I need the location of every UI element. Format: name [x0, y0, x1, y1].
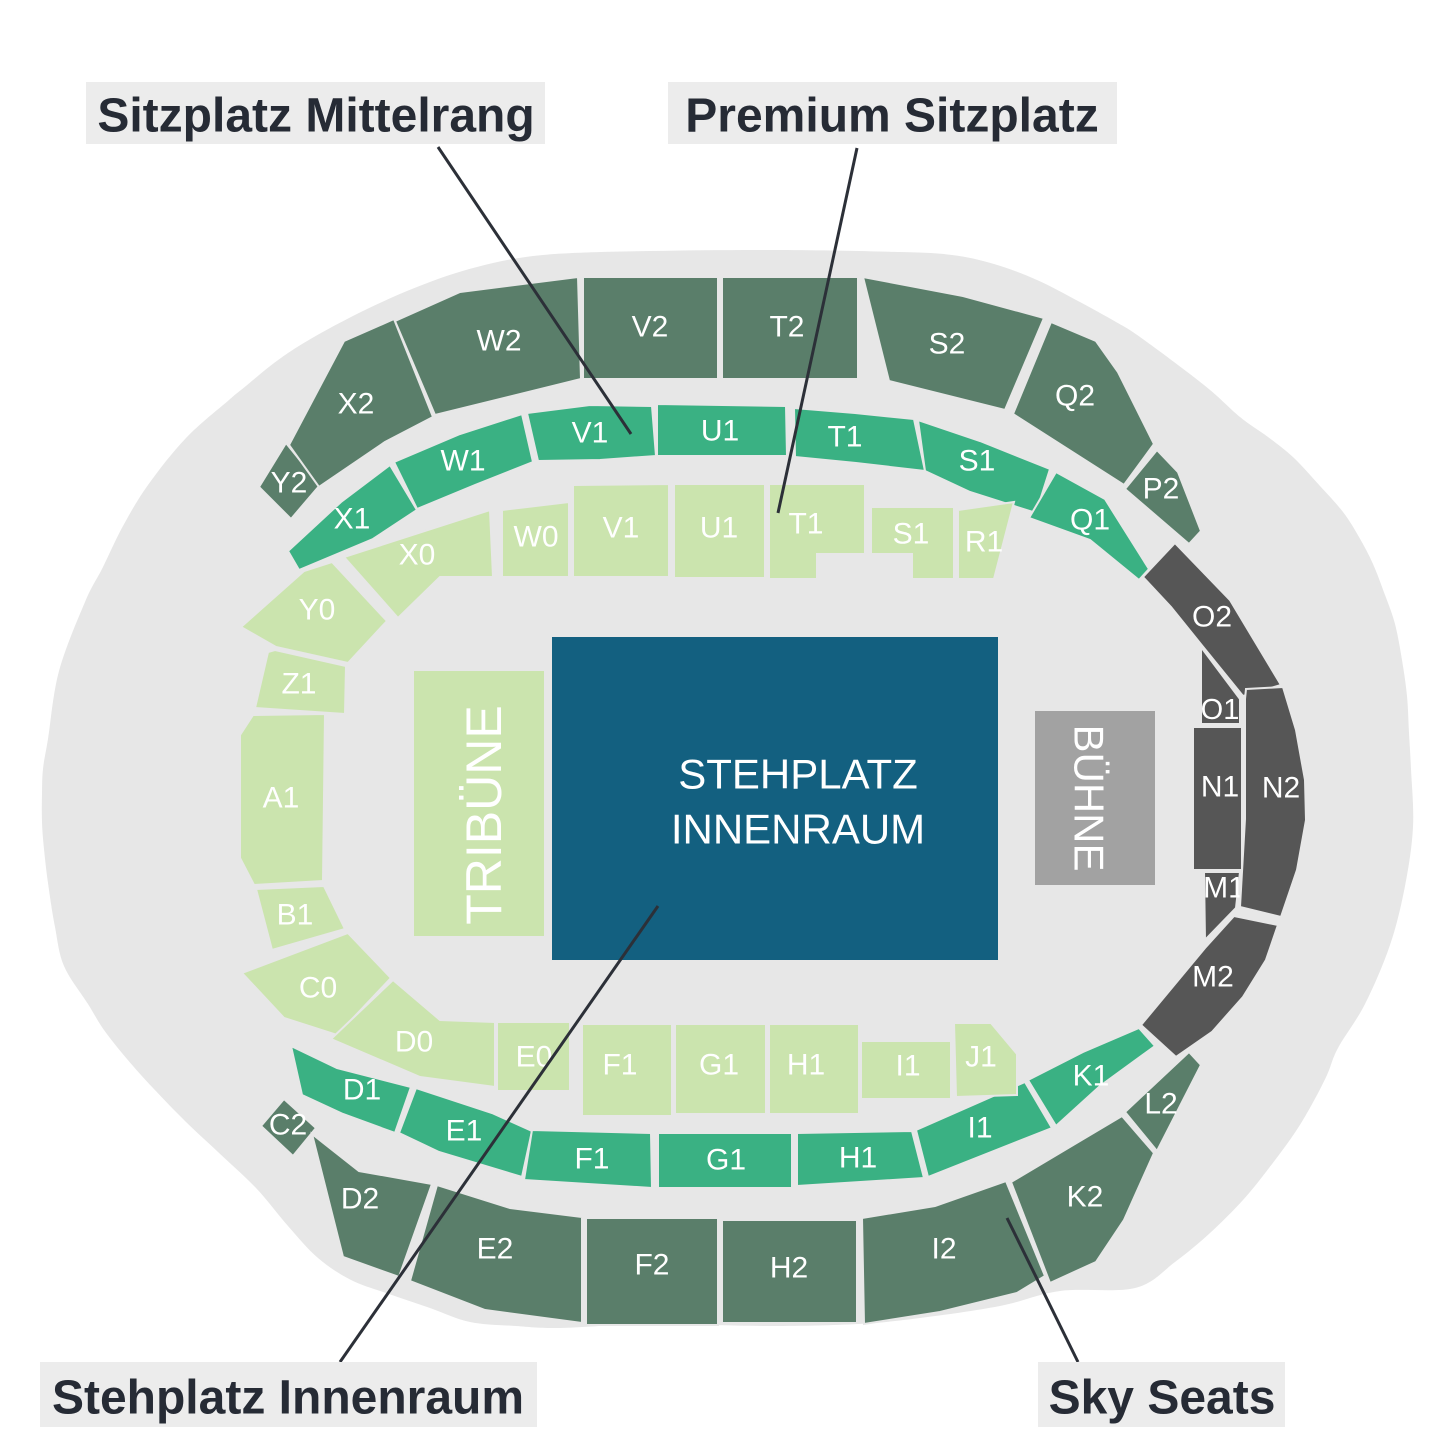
svg-text:U1: U1 [700, 512, 738, 545]
svg-text:M2: M2 [1192, 961, 1234, 994]
svg-text:V2: V2 [632, 311, 669, 344]
svg-text:R1: R1 [965, 526, 1003, 559]
svg-text:Sitzplatz Mittelrang: Sitzplatz Mittelrang [97, 90, 534, 143]
svg-text:U1: U1 [701, 415, 739, 448]
svg-text:X2: X2 [338, 388, 375, 421]
svg-text:J1: J1 [965, 1041, 997, 1074]
svg-text:S1: S1 [893, 518, 930, 551]
svg-text:V1: V1 [603, 512, 640, 545]
svg-text:E1: E1 [446, 1115, 483, 1148]
svg-text:STEHPLATZ: STEHPLATZ [678, 751, 918, 798]
svg-text:F1: F1 [574, 1143, 609, 1176]
svg-text:G1: G1 [706, 1144, 746, 1177]
svg-text:V1: V1 [572, 417, 609, 450]
svg-text:K1: K1 [1073, 1060, 1110, 1093]
svg-text:D0: D0 [395, 1026, 433, 1059]
svg-text:I1: I1 [895, 1050, 920, 1083]
svg-text:X1: X1 [334, 503, 371, 536]
svg-text:P2: P2 [1143, 473, 1180, 506]
svg-text:F1: F1 [602, 1049, 637, 1082]
svg-text:Y0: Y0 [299, 594, 336, 627]
svg-text:K2: K2 [1067, 1181, 1104, 1214]
svg-text:W1: W1 [441, 445, 486, 478]
svg-text:X0: X0 [399, 539, 436, 572]
svg-text:A1: A1 [263, 782, 300, 815]
svg-text:INNENRAUM: INNENRAUM [671, 806, 925, 853]
svg-text:C2: C2 [269, 1109, 307, 1142]
svg-text:I1: I1 [967, 1112, 992, 1145]
svg-text:E0: E0 [516, 1041, 553, 1074]
svg-text:Z1: Z1 [281, 668, 316, 701]
svg-text:M1: M1 [1203, 872, 1245, 905]
svg-text:B1: B1 [277, 899, 314, 932]
svg-text:N1: N1 [1201, 771, 1239, 804]
svg-text:Stehplatz Innenraum: Stehplatz Innenraum [52, 1372, 524, 1425]
svg-text:I2: I2 [931, 1233, 956, 1266]
svg-text:O1: O1 [1201, 694, 1240, 726]
svg-text:W0: W0 [514, 521, 559, 554]
svg-text:G1: G1 [699, 1049, 739, 1082]
svg-text:D2: D2 [341, 1183, 379, 1216]
svg-text:S2: S2 [929, 328, 966, 361]
svg-text:L2: L2 [1144, 1088, 1177, 1121]
svg-text:BÜHNE: BÜHNE [1066, 724, 1113, 871]
svg-text:F2: F2 [634, 1249, 669, 1282]
svg-text:T1: T1 [827, 421, 862, 454]
svg-text:W2: W2 [477, 325, 522, 358]
svg-text:E2: E2 [477, 1233, 514, 1266]
svg-text:D1: D1 [343, 1074, 381, 1107]
svg-text:H2: H2 [770, 1252, 808, 1285]
svg-text:T1: T1 [788, 508, 823, 541]
svg-text:Premium Sitzplatz: Premium Sitzplatz [685, 90, 1098, 143]
svg-text:O2: O2 [1192, 601, 1232, 634]
svg-text:Sky Seats: Sky Seats [1049, 1372, 1276, 1425]
svg-text:C0: C0 [299, 972, 337, 1005]
svg-text:TRIBÜNE: TRIBÜNE [456, 705, 512, 924]
svg-text:Y2: Y2 [271, 467, 308, 500]
svg-text:Q2: Q2 [1055, 380, 1095, 413]
svg-text:S1: S1 [959, 445, 996, 478]
svg-text:Q1: Q1 [1070, 504, 1110, 537]
svg-text:H1: H1 [787, 1049, 825, 1082]
svg-text:H1: H1 [839, 1142, 877, 1175]
svg-text:N2: N2 [1262, 772, 1300, 805]
svg-text:T2: T2 [769, 311, 804, 344]
